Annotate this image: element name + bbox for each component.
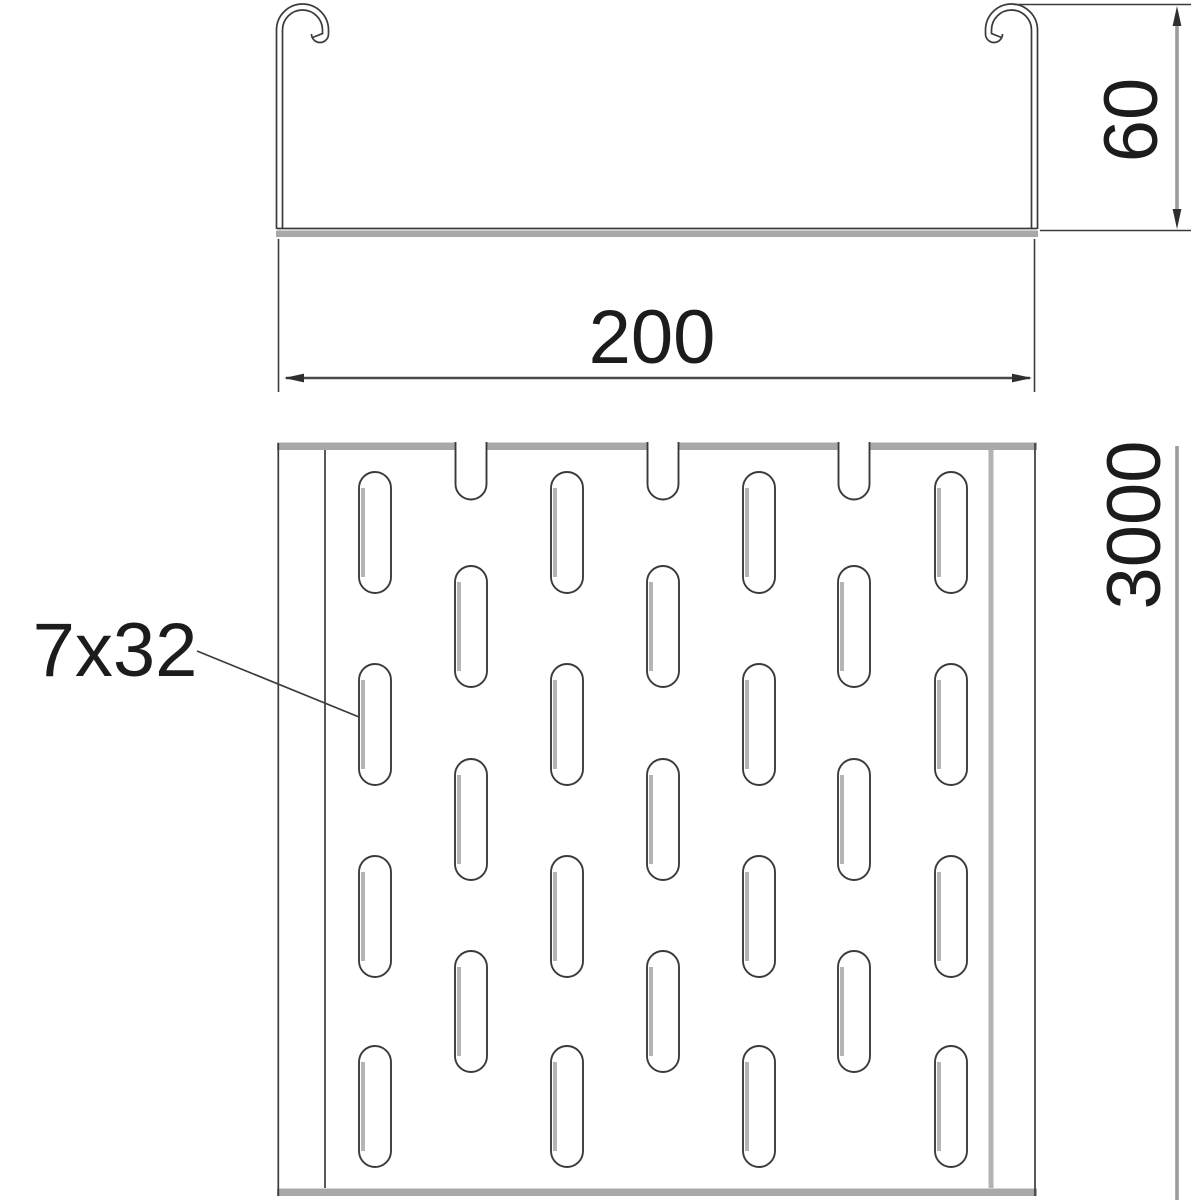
edge-notch bbox=[839, 442, 870, 500]
height-dimension: 60 bbox=[1014, 5, 1191, 231]
height-arrow-down-icon bbox=[1173, 209, 1182, 229]
height-dimension-label: 60 bbox=[1089, 78, 1174, 163]
slot-size-label: 7x32 bbox=[33, 608, 198, 693]
technical-drawing: 200 60 3000 7 bbox=[0, 0, 1200, 1200]
height-arrow-up-icon bbox=[1173, 6, 1182, 26]
left-wall-hook-outer-line bbox=[277, 4, 329, 229]
width-arrow-right-icon bbox=[1012, 374, 1032, 383]
width-arrow-left-icon bbox=[284, 374, 304, 383]
plan-view bbox=[277, 441, 1037, 1196]
tray-bottom-shade bbox=[276, 231, 1038, 238]
length-dimension-label: 3000 bbox=[1092, 440, 1177, 609]
edge-notch bbox=[648, 442, 679, 500]
width-dimension-label: 200 bbox=[589, 295, 716, 380]
drawing-canvas: 200 60 3000 7 bbox=[0, 0, 1200, 1200]
right-wall-hook-inner-line bbox=[992, 10, 1032, 229]
right-wall-hook-outer-line bbox=[986, 4, 1038, 229]
width-dimension: 200 bbox=[279, 239, 1035, 392]
cross-section-view bbox=[276, 4, 1038, 237]
length-dimension: 3000 bbox=[1092, 440, 1177, 1200]
edge-notch bbox=[456, 442, 487, 500]
left-wall-hook-inner-line bbox=[283, 10, 323, 229]
plate-bottom-edge-shade bbox=[277, 1189, 1037, 1197]
